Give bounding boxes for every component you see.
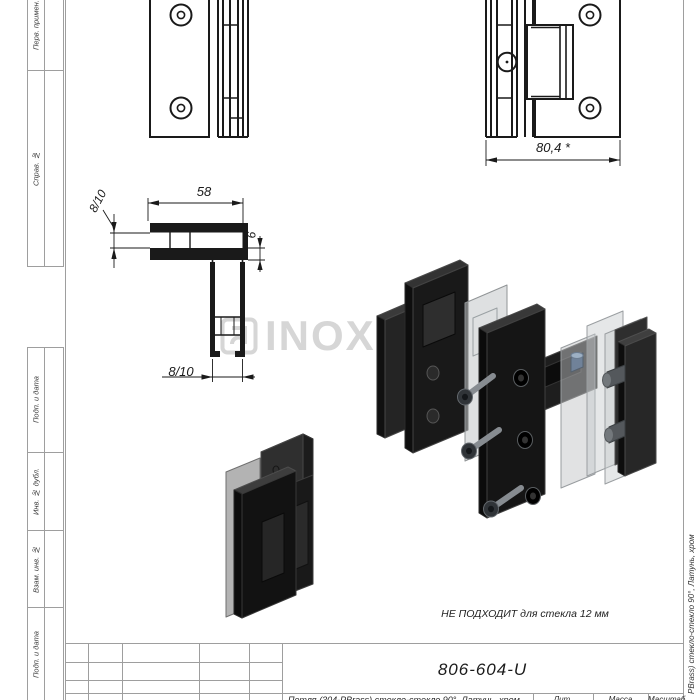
exploded-view-render — [375, 248, 660, 538]
titleblock-header-scale: Масштаб — [648, 695, 683, 700]
dimension-label-arm-length: 58 — [186, 184, 222, 199]
dimension-label-plate-thickness: 6 — [244, 232, 258, 239]
assembled-view-render — [218, 388, 352, 625]
titleblock-header-lit: Лит. — [533, 695, 593, 700]
titleblock-header-mass: Масса — [593, 695, 648, 700]
part-designation: 806-604-U — [282, 649, 683, 691]
note-glass-12mm: НЕ ПОДХОДИТ для стекла 12 мм — [420, 608, 630, 620]
dimension-label-glass-bottom: 8/10 — [160, 364, 202, 379]
view-side-section — [103, 198, 265, 382]
dimension-label-overall-width: 80,4 * — [515, 140, 591, 155]
drawing-sheet: Перв. примен. Справ. № Подп. и дата Инв.… — [0, 0, 700, 700]
view-front-left — [150, 0, 248, 137]
side-margin-text: PBrass) стекло-стекло 90°, Латунь, хром — [685, 472, 698, 694]
part-name-row: Петля (304-PBrass) стекло-стекло 90°, Ла… — [288, 695, 520, 700]
